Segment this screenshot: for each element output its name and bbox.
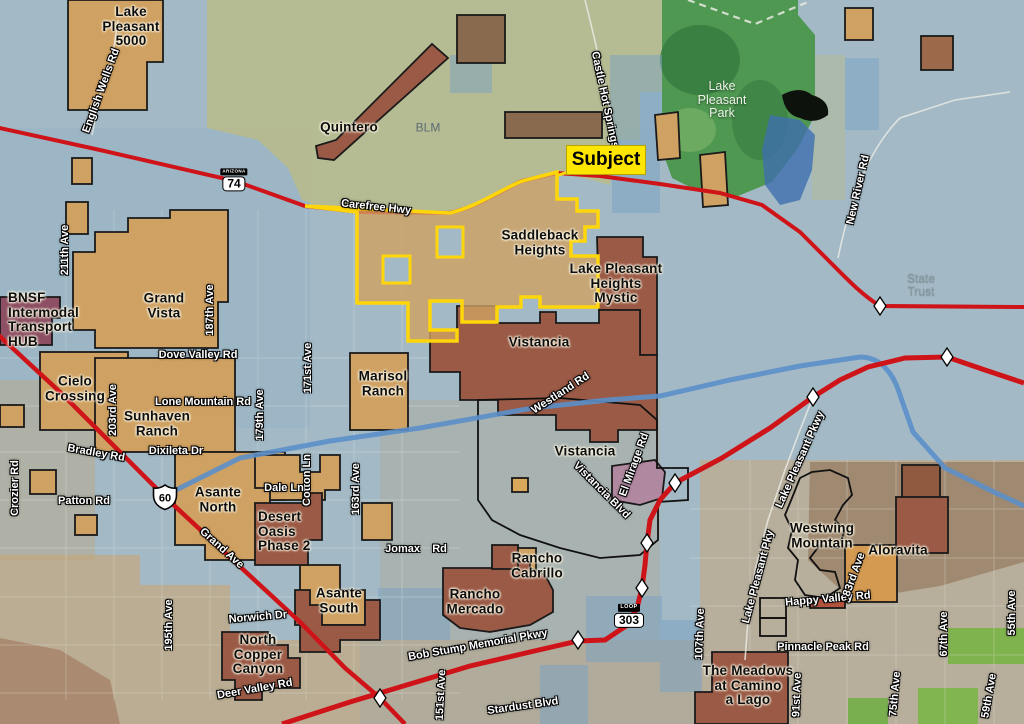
label-state-trust: State Trust	[907, 272, 935, 298]
road-label: 75th Ave	[888, 671, 904, 717]
road-label: Dove Valley Rd	[159, 350, 238, 362]
label-asante-north: Asante North	[195, 485, 241, 514]
label-lake-pleasant-5000: Lake Pleasant 5000	[102, 5, 159, 49]
road-label: Pinnacle Peak Rd	[777, 642, 869, 654]
road-label: Crozier Rd	[10, 460, 22, 516]
road-label: Norwich Dr	[228, 610, 287, 627]
interchange-diamond-icon	[806, 387, 820, 407]
road-label: Lake Pleasant Pky	[741, 529, 777, 625]
road-label: Carefree Hwy	[340, 198, 411, 217]
road-label: Dale Ln	[264, 483, 304, 495]
label-vistancia-south: Vistancia	[555, 445, 616, 460]
road-label: 83rd Ave	[842, 552, 869, 599]
road-label: 163rd Ave	[351, 463, 363, 515]
road-label: Castle Hot Springs	[588, 51, 620, 150]
label-grand-vista: Grand Vista	[144, 291, 185, 320]
label-rancho-cabrillo: Rancho Cabrillo	[511, 551, 563, 580]
road-label: Westland Rd	[530, 371, 592, 417]
road-label: Cotton Ln	[302, 454, 314, 506]
interchange-diamond-icon	[873, 296, 887, 316]
road-label: Deer Valley Rd	[216, 678, 293, 703]
label-blm: BLM	[416, 122, 441, 135]
road-label: 107th Ave	[694, 608, 708, 660]
road-label: Bradley Rd	[66, 443, 125, 465]
road-label: 211th Ave	[60, 225, 72, 276]
road-label: Jomax Rd	[385, 544, 447, 556]
road-label: English Wells Rd	[81, 47, 123, 135]
road-label: Dixileta Dr	[149, 446, 203, 458]
road-label: 179th Ave	[255, 389, 267, 440]
label-north-copper-canyon: North Copper Canyon	[233, 633, 284, 677]
interchange-diamond-icon	[571, 630, 585, 650]
label-lake-pleasant-heights-mystic: Lake Pleasant Heights Mystic	[570, 262, 663, 306]
road-label: Patton Rd	[58, 496, 110, 508]
label-the-meadows-at-camino-a-lago: The Meadows at Camino a Lago	[703, 664, 794, 708]
road-label: Lone Mountain Rd	[155, 397, 251, 409]
road-label: 171st Ave	[303, 343, 315, 394]
road-label: Grand Ave	[197, 526, 246, 572]
label-quintero: Quintero	[320, 121, 378, 136]
subject-callout-label: Subject	[566, 145, 646, 175]
road-label: Bob Stump Memorial Pkwy	[407, 628, 548, 664]
interchange-diamond-icon	[940, 347, 954, 367]
road-label: 91st Ave	[791, 673, 804, 718]
road-label: 55th Ave	[1007, 590, 1019, 635]
labels-layer: Lake Pleasant 5000QuinteroBLMLake Pleasa…	[0, 0, 1024, 724]
label-rancho-mercado: Rancho Mercado	[447, 587, 504, 616]
label-bnsf-hub: BNSF Intermodal Transport HUB	[8, 291, 79, 349]
road-label: 151st Ave	[435, 669, 450, 720]
label-sunhaven-ranch: Sunhaven Ranch	[124, 409, 190, 438]
label-marisol-ranch: Marisol Ranch	[359, 369, 408, 398]
label-saddleback-heights: Saddleback Heights	[501, 228, 578, 257]
interchange-diamond-icon	[373, 688, 387, 708]
road-label: Vistancia Blvd	[570, 460, 631, 521]
label-cielo-crossing: Cielo Crossing	[45, 374, 105, 403]
label-aloravita: Aloravita	[868, 544, 928, 559]
label-asante-south: Asante South	[316, 586, 362, 615]
road-label: 195th Ave	[164, 599, 176, 650]
road-label: 203rd Ave	[108, 384, 120, 436]
road-label: El Mirage Rd	[618, 432, 652, 499]
road-label: 67th Ave	[939, 611, 951, 656]
label-vistancia-north: Vistancia	[509, 336, 570, 351]
road-label: Stardust Blvd	[487, 696, 559, 718]
label-westwing-mountain: Westwing Mountain	[790, 521, 854, 550]
road-label: 59th Ave	[980, 673, 1000, 719]
road-label: New River Rd	[845, 154, 873, 226]
parcel-aerial-map: Lake Pleasant 5000QuinteroBLMLake Pleasa…	[0, 0, 1024, 724]
road-label: Lake Pleasant Pkwy	[774, 410, 827, 510]
interchange-diamond-icon	[640, 533, 654, 553]
road-label: 187th Ave	[205, 284, 217, 335]
interchange-diamond-icon	[635, 578, 649, 598]
interchange-diamond-icon	[668, 473, 682, 493]
road-label: Happy Valley Rd	[785, 590, 871, 609]
label-lake-pleasant-park: Lake Pleasant Park	[698, 80, 747, 121]
label-desert-oasis-phase-2: Desert Oasis Phase 2	[258, 510, 310, 554]
